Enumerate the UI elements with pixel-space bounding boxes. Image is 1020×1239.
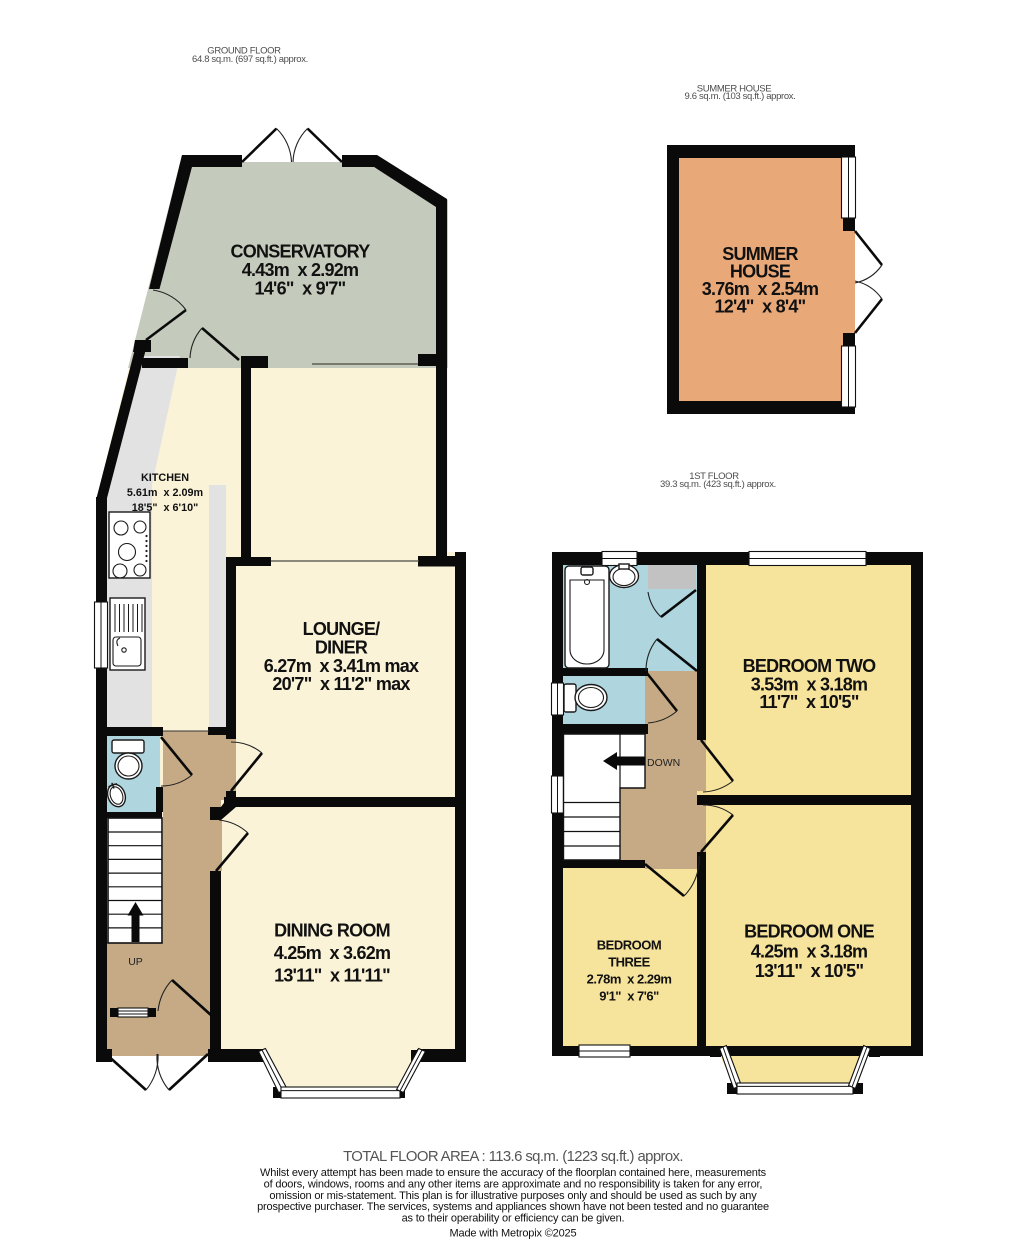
- svg-text:of doors, windows, rooms and a: of doors, windows, rooms and any other i…: [264, 1178, 763, 1190]
- svg-text:2.78m x 2.29m: 2.78m x 2.29m: [587, 972, 672, 987]
- svg-text:DINING ROOM: DINING ROOM: [274, 921, 390, 941]
- svg-text:20'7" x 11'2" max: 20'7" x 11'2" max: [272, 674, 410, 694]
- svg-text:THREE: THREE: [608, 955, 650, 970]
- svg-text:4.25m x 3.62m: 4.25m x 3.62m: [274, 943, 391, 963]
- svg-text:KITCHEN: KITCHEN: [141, 472, 189, 484]
- svg-text:Made with Metropix ©2025: Made with Metropix ©2025: [450, 1228, 577, 1239]
- svg-text:9'1" x 7'6": 9'1" x 7'6": [599, 989, 659, 1004]
- svg-text:TOTAL FLOOR AREA : 113.6 sq.m.: TOTAL FLOOR AREA : 113.6 sq.m. (1223 sq.…: [343, 1149, 683, 1165]
- svg-text:DOWN: DOWN: [647, 757, 680, 769]
- svg-text:BEDROOM: BEDROOM: [597, 938, 661, 953]
- svg-text:9.6 sq.m. (103 sq.ft.) approx.: 9.6 sq.m. (103 sq.ft.) approx.: [685, 91, 796, 102]
- svg-text:CONSERVATORY: CONSERVATORY: [230, 242, 370, 262]
- svg-text:11'7" x 10'5": 11'7" x 10'5": [759, 692, 858, 712]
- svg-text:Whilst every attempt has been: Whilst every attempt has been made to en…: [260, 1167, 767, 1179]
- svg-text:12'4" x 8'4": 12'4" x 8'4": [715, 297, 806, 317]
- svg-text:5.61m x 2.09m: 5.61m x 2.09m: [127, 487, 203, 499]
- svg-text:BEDROOM ONE: BEDROOM ONE: [744, 922, 875, 942]
- svg-text:6.27m x 3.41m max: 6.27m x 3.41m max: [264, 656, 419, 676]
- svg-text:DINER: DINER: [315, 637, 368, 657]
- svg-text:64.8 sq.m. (697 sq.ft.) approx: 64.8 sq.m. (697 sq.ft.) approx.: [192, 54, 308, 65]
- svg-text:LOUNGE/: LOUNGE/: [303, 619, 381, 639]
- svg-text:13'11" x 11'11": 13'11" x 11'11": [274, 965, 390, 985]
- svg-text:UP: UP: [128, 956, 143, 968]
- svg-text:18'5" x 6'10": 18'5" x 6'10": [132, 502, 198, 514]
- svg-text:prospective purchaser. The ser: prospective purchaser. The services, sys…: [257, 1201, 769, 1213]
- svg-text:14'6" x 9'7": 14'6" x 9'7": [255, 279, 346, 299]
- svg-text:as to their operability or eff: as to their operability or efficiency ca…: [402, 1213, 625, 1225]
- svg-text:BEDROOM TWO: BEDROOM TWO: [743, 656, 876, 676]
- svg-text:4.43m x 2.92m: 4.43m x 2.92m: [242, 260, 359, 280]
- svg-text:39.3 sq.m. (423 sq.ft.) approx: 39.3 sq.m. (423 sq.ft.) approx.: [660, 479, 776, 490]
- svg-text:13'11" x 10'5": 13'11" x 10'5": [755, 961, 864, 981]
- svg-text:4.25m x 3.18m: 4.25m x 3.18m: [751, 941, 868, 961]
- svg-text:omission or mis-statement. Thi: omission or mis-statement. This plan is …: [269, 1190, 757, 1202]
